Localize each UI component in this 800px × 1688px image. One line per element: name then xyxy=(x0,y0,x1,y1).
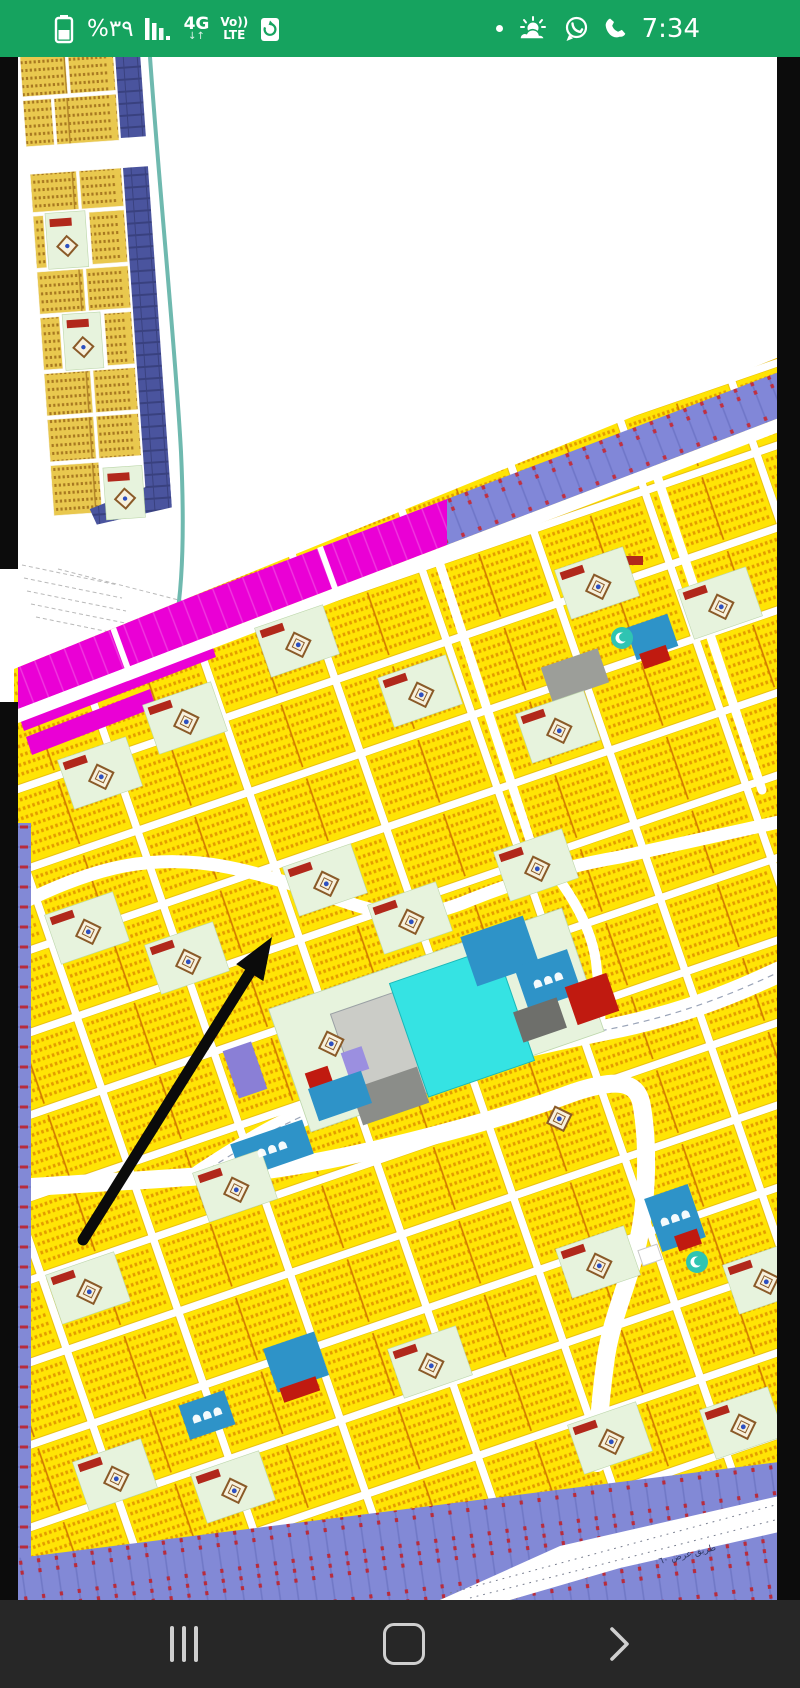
network-4g-label: 4G ↓↑ xyxy=(184,16,210,42)
back-icon[interactable] xyxy=(610,1627,630,1661)
navigation-bar xyxy=(0,1600,800,1688)
photo-edge-left-top xyxy=(0,0,18,569)
photo-edge-left-bottom xyxy=(0,702,18,1600)
photo-edge-right xyxy=(777,0,800,1600)
status-bar-left: %٣٩ 4G ↓↑ Vo)) LTE xyxy=(52,14,281,44)
phone-screen: { "status_bar": { "bg_color": "#16a35f",… xyxy=(0,0,800,1688)
battery-percent-label: %٣٩ xyxy=(87,16,134,42)
recents-icon[interactable] xyxy=(170,1626,198,1662)
weather-icon xyxy=(516,16,550,42)
whatsapp-icon xyxy=(563,15,590,42)
map-svg: طريق عرض ٦٠ xyxy=(0,57,800,1600)
map-photo[interactable]: طريق عرض ٦٠ xyxy=(0,57,800,1600)
left-plot-strip xyxy=(18,823,31,1600)
call-icon xyxy=(603,16,629,42)
battery-saver-icon xyxy=(259,15,281,43)
home-icon[interactable] xyxy=(383,1623,425,1665)
volte-label: Vo)) LTE xyxy=(220,16,248,41)
signal-bars-icon xyxy=(145,16,173,42)
battery-icon xyxy=(52,14,76,44)
notification-dot xyxy=(496,25,503,32)
status-bar-right: 7:34 xyxy=(496,14,700,44)
status-bar: %٣٩ 4G ↓↑ Vo)) LTE xyxy=(0,0,800,57)
clock-label: 7:34 xyxy=(642,14,700,44)
